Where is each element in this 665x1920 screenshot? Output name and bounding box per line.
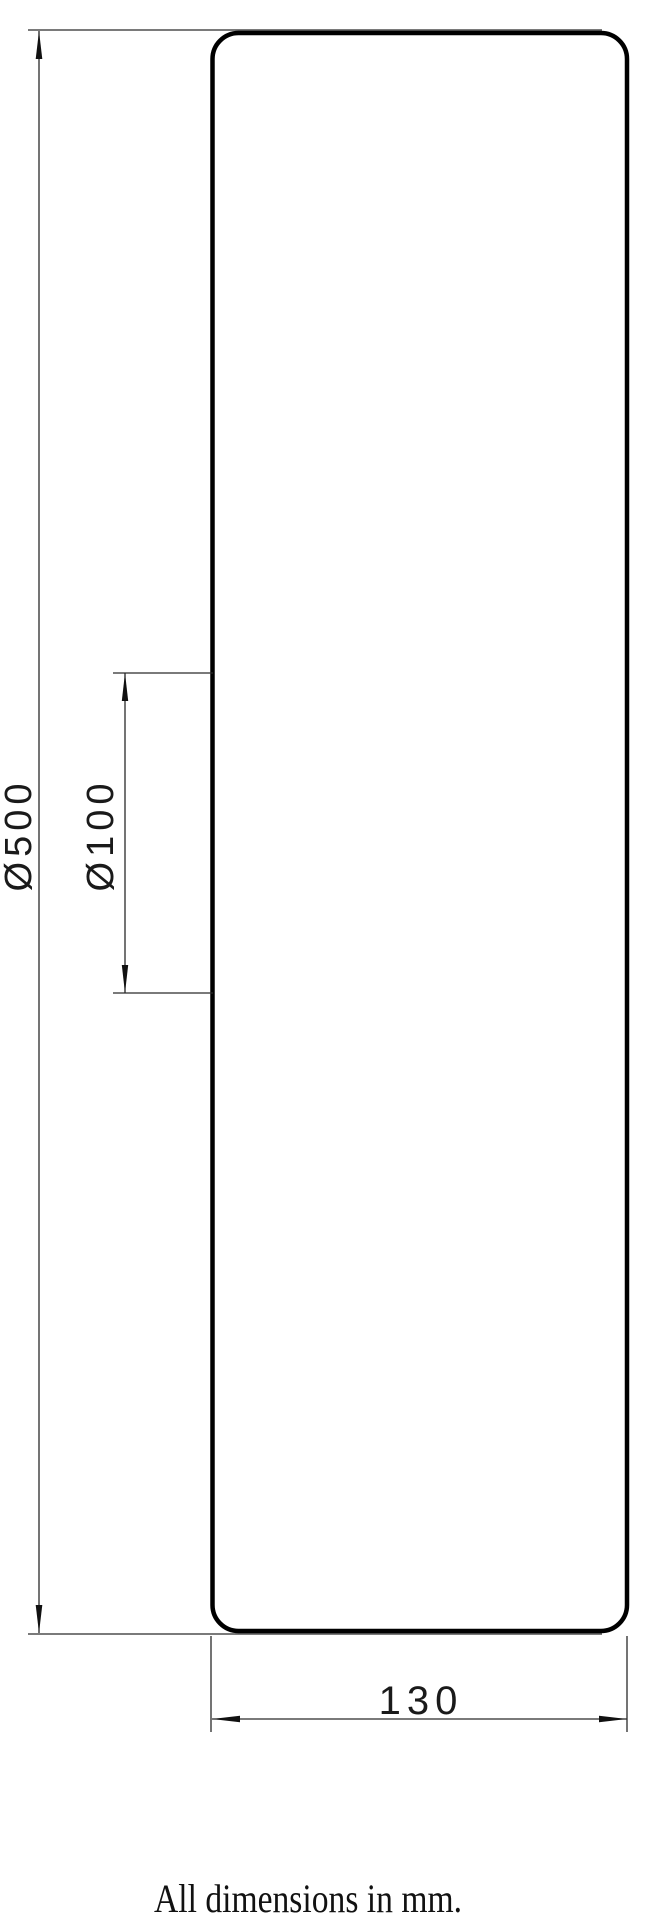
arrowhead-down-icon bbox=[122, 965, 128, 993]
part-outline bbox=[213, 33, 628, 1631]
arrowhead-up-icon bbox=[122, 673, 128, 701]
overall-diameter-label: Ø500 bbox=[0, 779, 38, 892]
inner-diameter-label: Ø100 bbox=[82, 779, 120, 892]
drawing-canvas: Ø500 Ø100 130 All dimensions in mm. bbox=[0, 0, 665, 1920]
arrowhead-right-icon bbox=[599, 1716, 627, 1722]
units-note: All dimensions in mm. bbox=[154, 1879, 462, 1919]
dimension-inner-diameter bbox=[113, 673, 213, 993]
arrowhead-down-icon bbox=[36, 1605, 43, 1633]
arrowhead-left-icon bbox=[212, 1716, 240, 1722]
technical-drawing bbox=[0, 0, 665, 1920]
thickness-label: 130 bbox=[379, 1681, 464, 1721]
arrowhead-up-icon bbox=[36, 31, 43, 59]
